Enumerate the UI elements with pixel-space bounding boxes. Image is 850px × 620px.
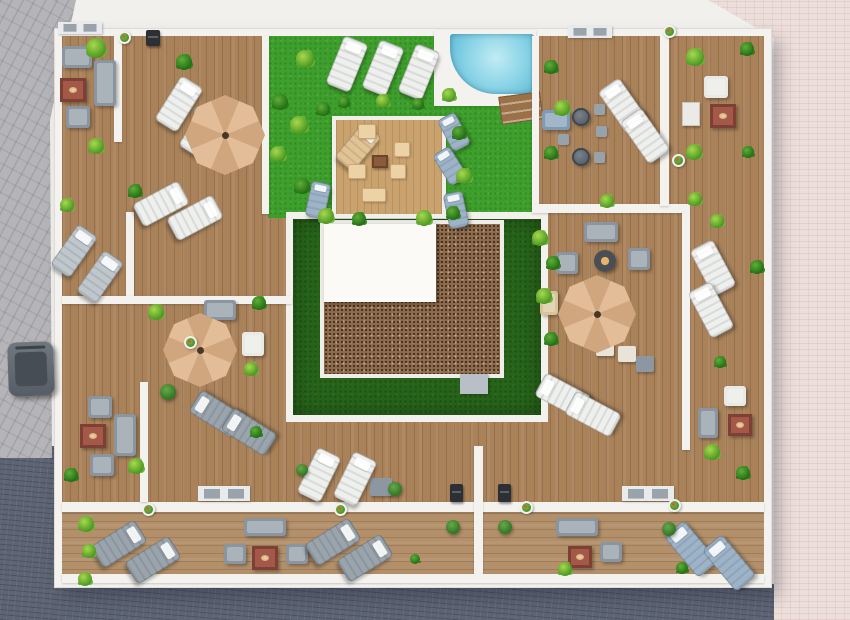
dining-table	[572, 108, 590, 126]
plant	[714, 356, 726, 368]
plant	[686, 144, 702, 160]
street-pavement-bottom	[54, 584, 776, 620]
plant	[736, 466, 750, 480]
cushion	[358, 124, 376, 139]
planter-pot	[334, 503, 347, 516]
plant	[536, 288, 552, 304]
parked-car	[7, 341, 55, 397]
plant	[442, 88, 456, 102]
wall	[62, 574, 764, 583]
plant	[316, 102, 330, 116]
plant	[78, 516, 94, 532]
sofa	[244, 518, 286, 536]
grill	[450, 484, 463, 502]
plant	[376, 94, 390, 108]
armchair	[600, 542, 622, 562]
armchair	[628, 248, 650, 270]
plant	[352, 212, 366, 226]
core-white-roof	[324, 224, 436, 302]
parasol	[558, 275, 636, 353]
plant	[412, 98, 424, 110]
plant	[148, 304, 164, 320]
fire-table	[710, 104, 736, 128]
sofa	[584, 222, 618, 242]
plant	[750, 260, 764, 274]
low-table	[372, 155, 388, 168]
sofa	[94, 60, 116, 106]
plant	[740, 42, 754, 56]
plant	[532, 230, 548, 246]
planter-pot	[663, 25, 676, 38]
rooftop-equipment	[568, 26, 612, 38]
plant	[296, 50, 314, 68]
plant	[86, 38, 106, 58]
fire-bowl	[594, 250, 616, 272]
grill	[498, 484, 511, 502]
armchair	[224, 544, 246, 564]
planter-pot	[668, 499, 681, 512]
chair	[596, 126, 607, 137]
cushion	[362, 188, 386, 202]
plant	[544, 60, 558, 74]
outdoor-kitchen-counter	[622, 486, 674, 501]
parasol	[185, 95, 265, 175]
rooftop-terrace-plan-render	[0, 0, 850, 620]
cushion	[394, 142, 410, 157]
plant	[498, 520, 512, 534]
armchair	[704, 76, 728, 98]
plant	[416, 210, 432, 226]
wall	[262, 36, 269, 214]
plant	[446, 206, 460, 220]
ottoman	[618, 346, 636, 362]
chair	[558, 134, 569, 145]
planter-pot	[672, 154, 685, 167]
plant	[388, 482, 402, 496]
outdoor-kitchen-counter	[198, 486, 250, 501]
planter-pot	[520, 501, 533, 514]
plant	[546, 256, 560, 270]
plant	[338, 96, 350, 108]
dining-table	[572, 148, 590, 166]
plant	[446, 520, 460, 534]
planter-pot	[142, 503, 155, 516]
armchair	[724, 386, 746, 406]
plant	[318, 208, 334, 224]
plant	[544, 332, 558, 346]
chair	[594, 152, 605, 163]
wall	[126, 212, 134, 302]
plant	[252, 296, 266, 310]
plant	[688, 192, 702, 206]
plant	[410, 554, 420, 564]
wall	[682, 212, 690, 450]
plant	[244, 362, 258, 376]
plant	[160, 384, 176, 400]
plant	[554, 100, 570, 116]
plant	[88, 138, 104, 154]
fire-table	[80, 424, 106, 448]
plant	[290, 116, 308, 134]
plant	[82, 544, 96, 558]
wall	[140, 382, 148, 502]
scene-layer	[0, 0, 850, 620]
plant	[128, 458, 144, 474]
cabinet	[682, 102, 700, 126]
plant	[270, 146, 286, 162]
rooftop-equipment	[58, 22, 102, 34]
fire-table	[60, 78, 86, 102]
plant	[294, 178, 310, 194]
parasol	[163, 313, 237, 387]
armchair	[242, 332, 264, 356]
plant	[742, 146, 754, 158]
plant	[176, 54, 192, 70]
rooftop-unit	[460, 374, 488, 394]
plant	[452, 126, 466, 140]
plant	[272, 94, 288, 110]
grill	[146, 30, 160, 46]
fire-table	[252, 546, 278, 570]
plant	[78, 572, 92, 586]
ottoman	[636, 356, 654, 372]
planter-pot	[184, 336, 197, 349]
plant	[60, 198, 74, 212]
wall	[62, 502, 764, 512]
wall	[532, 36, 539, 206]
armchair	[66, 106, 90, 128]
cushion	[348, 164, 366, 179]
wall	[660, 36, 669, 206]
plant	[676, 562, 688, 574]
sofa	[556, 518, 598, 536]
plant	[558, 562, 572, 576]
fire-table	[568, 546, 592, 568]
plant	[250, 426, 262, 438]
plant	[544, 146, 558, 160]
plant	[128, 184, 142, 198]
plant	[710, 214, 724, 228]
armchair	[90, 454, 114, 476]
fire-table	[728, 414, 752, 436]
plant	[64, 468, 78, 482]
plant	[662, 522, 676, 536]
armchair	[88, 396, 112, 418]
plant	[456, 168, 472, 184]
plant	[296, 464, 308, 476]
cushion	[390, 164, 406, 179]
wall	[474, 446, 483, 580]
planter-pot	[118, 31, 131, 44]
plant	[704, 444, 720, 460]
plant	[686, 48, 704, 66]
sofa	[698, 408, 718, 438]
street-pavement-bottom-left	[0, 446, 54, 620]
chair	[594, 104, 605, 115]
plant	[600, 194, 614, 208]
sofa	[114, 414, 136, 456]
